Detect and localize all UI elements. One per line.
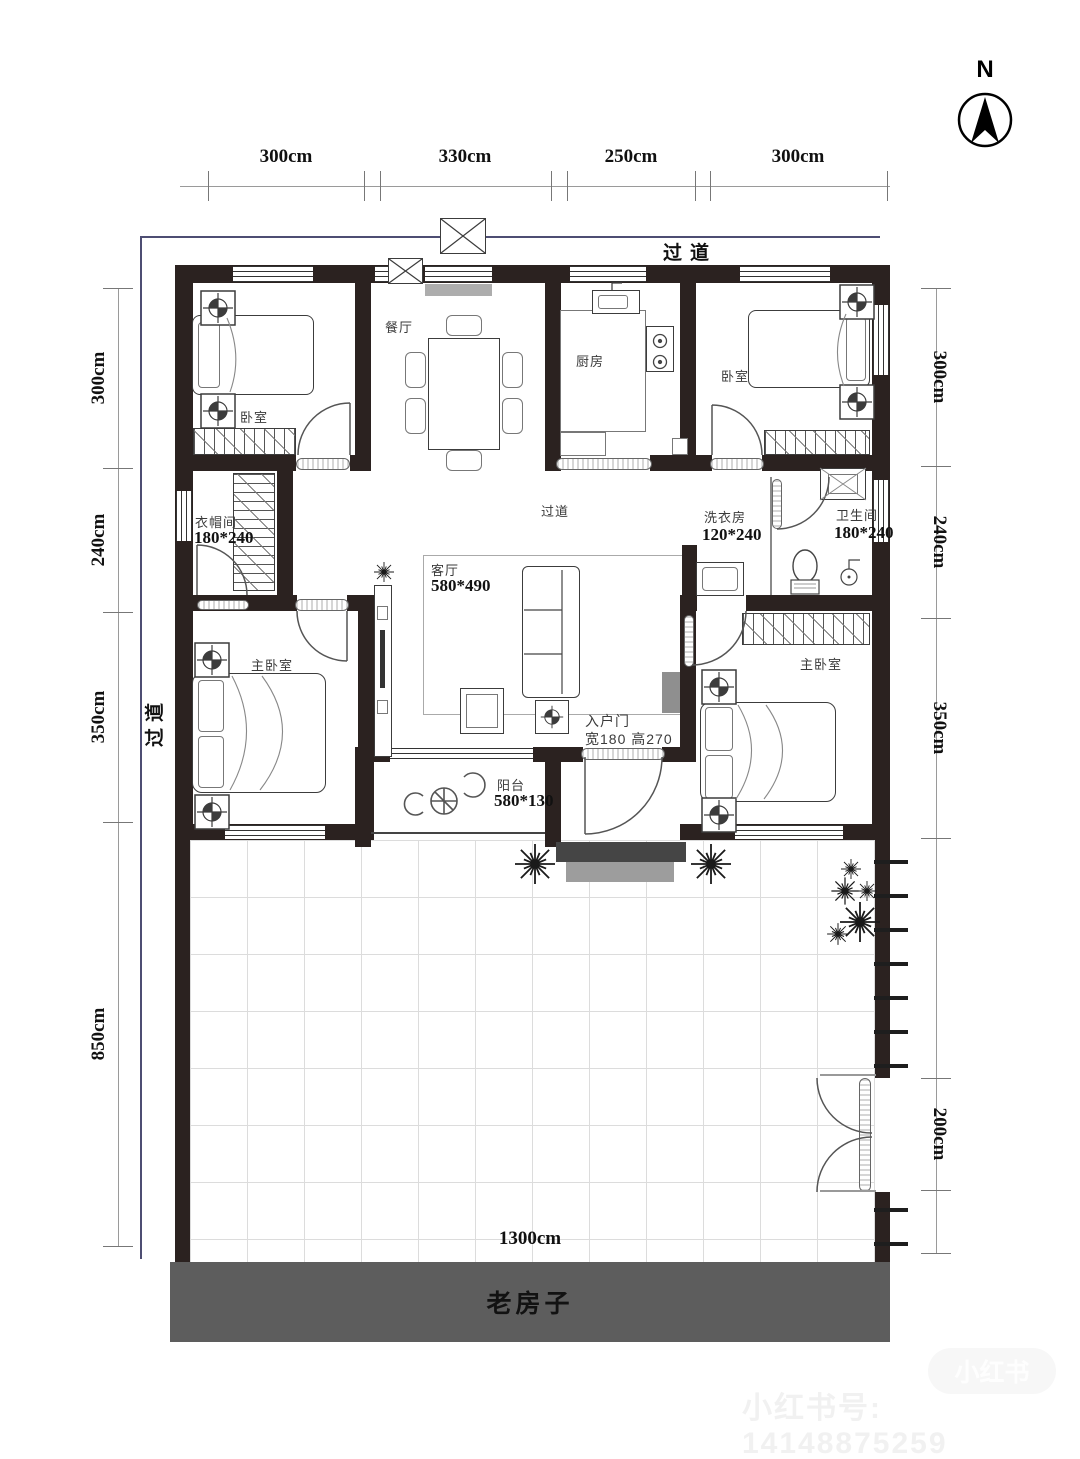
dim-tick bbox=[103, 1246, 133, 1247]
door-threshold bbox=[710, 458, 764, 470]
wall bbox=[561, 747, 583, 762]
boundary-line-top bbox=[140, 236, 880, 238]
room-size-cloakroom: 180*240 bbox=[194, 528, 254, 548]
dim-tick bbox=[364, 171, 365, 201]
fence-tick bbox=[874, 928, 908, 932]
room-label-master-left: 主卧室 bbox=[251, 655, 293, 674]
dim-tick bbox=[921, 618, 951, 619]
dim-tick bbox=[710, 171, 711, 201]
wall bbox=[746, 595, 872, 611]
room-size-entry: 宽180 高270 bbox=[585, 729, 673, 749]
balcony-edge bbox=[371, 832, 545, 834]
room-size-bath: 180*240 bbox=[834, 523, 894, 543]
fence-tick bbox=[874, 1208, 908, 1212]
cabinet-knob bbox=[377, 606, 388, 620]
wall bbox=[545, 283, 561, 471]
vent-flower bbox=[374, 562, 394, 582]
room-label-laundry: 洗衣房 bbox=[704, 507, 746, 526]
column-marker bbox=[702, 670, 736, 704]
wall-courtyard-right bbox=[875, 840, 890, 1078]
fence-tick bbox=[874, 962, 908, 966]
entry-threshold bbox=[581, 748, 665, 760]
dim-left-2: 240cm bbox=[89, 500, 109, 580]
room-label-dining: 餐厅 bbox=[385, 317, 413, 336]
bath-sink bbox=[828, 474, 858, 494]
room-size-laundry: 120*240 bbox=[702, 525, 762, 545]
dim-tick bbox=[208, 171, 209, 201]
dim-tick bbox=[695, 171, 696, 201]
dim-tick bbox=[103, 612, 133, 613]
corridor-label-top: 过道 bbox=[630, 238, 750, 264]
room-label-bedroom-tl: 卧室 bbox=[240, 407, 268, 426]
dim-tick bbox=[551, 171, 552, 201]
coffee-table-inner bbox=[466, 694, 498, 728]
dim-tick bbox=[921, 288, 951, 289]
washer-door bbox=[702, 567, 738, 591]
boundary-line-left bbox=[140, 236, 142, 1259]
chair bbox=[405, 398, 426, 434]
fence-tick bbox=[874, 1064, 908, 1068]
window bbox=[233, 266, 313, 282]
room-label-kitchen: 厨房 bbox=[576, 351, 604, 370]
wardrobe bbox=[742, 613, 870, 645]
room-label-master-right: 主卧室 bbox=[800, 654, 842, 673]
room-size-living: 580*490 bbox=[431, 576, 491, 596]
wall-courtyard-left bbox=[175, 840, 190, 1262]
window bbox=[873, 305, 889, 375]
dim-tick bbox=[921, 1078, 951, 1079]
cabinet-knob bbox=[377, 700, 388, 714]
wall bbox=[175, 265, 193, 840]
chair bbox=[446, 450, 482, 471]
dim-right-1: 300cm bbox=[929, 337, 949, 417]
dim-tick bbox=[103, 822, 133, 823]
pillow bbox=[705, 755, 733, 799]
window bbox=[740, 266, 830, 282]
door-threshold bbox=[296, 458, 350, 470]
sofa bbox=[522, 566, 580, 698]
window bbox=[425, 266, 492, 282]
wall bbox=[533, 747, 545, 762]
window bbox=[570, 266, 646, 282]
corridor-label-left: 过道 bbox=[143, 682, 163, 762]
north-arrow-icon bbox=[959, 94, 1011, 146]
window bbox=[176, 491, 192, 541]
flue-box bbox=[388, 258, 423, 284]
dim-top-2: 330cm bbox=[420, 146, 510, 168]
fence-tick bbox=[874, 894, 908, 898]
dim-line-left bbox=[118, 288, 119, 1246]
door-threshold bbox=[295, 599, 349, 611]
chair bbox=[405, 352, 426, 388]
dim-top-3: 250cm bbox=[586, 146, 676, 168]
chair bbox=[502, 352, 523, 388]
gate-frame bbox=[820, 1190, 876, 1192]
floorplan-canvas: 300cm 330cm 250cm 300cm 300cm 240cm 350c… bbox=[0, 0, 1080, 1459]
gate-frame bbox=[820, 1074, 876, 1076]
dim-top-1: 300cm bbox=[241, 146, 331, 168]
sink-basin bbox=[598, 295, 628, 309]
wall-courtyard-right bbox=[875, 1192, 890, 1262]
balcony-plants bbox=[404, 773, 484, 815]
wall bbox=[650, 455, 680, 471]
dim-top-4: 300cm bbox=[753, 146, 843, 168]
window bbox=[225, 825, 325, 839]
dim-left-3: 350cm bbox=[89, 677, 109, 757]
room-label-hall: 过道 bbox=[541, 501, 569, 520]
fence-tick bbox=[874, 1242, 908, 1246]
room-label-entry: 入户门 bbox=[585, 711, 630, 731]
pillow bbox=[705, 707, 733, 751]
dim-line-top bbox=[180, 186, 890, 187]
dim-right-3: 350cm bbox=[929, 688, 949, 768]
gate-leaf bbox=[859, 1078, 871, 1192]
dim-tick bbox=[567, 171, 568, 201]
survey-box bbox=[535, 700, 569, 734]
fence-tick bbox=[874, 996, 908, 1000]
wall bbox=[277, 471, 293, 595]
dim-tick bbox=[103, 288, 133, 289]
dim-bottom: 1300cm bbox=[480, 1228, 580, 1250]
pillow bbox=[198, 680, 224, 732]
dim-left-4: 850cm bbox=[89, 994, 109, 1074]
column-marker bbox=[201, 394, 235, 428]
old-house-band: 老房子 bbox=[170, 1262, 890, 1342]
wall bbox=[680, 595, 690, 611]
wardrobe bbox=[764, 430, 870, 455]
wall bbox=[193, 455, 296, 471]
dim-tick bbox=[921, 1253, 951, 1254]
tv bbox=[380, 630, 385, 688]
dim-tick bbox=[887, 171, 888, 201]
window bbox=[390, 748, 533, 761]
door-threshold bbox=[197, 600, 249, 610]
kitchen-counter bbox=[560, 310, 646, 432]
flue-box bbox=[440, 218, 486, 254]
pillow bbox=[846, 317, 866, 381]
fence-tick bbox=[874, 1030, 908, 1034]
dim-tick bbox=[921, 466, 951, 467]
wardrobe bbox=[193, 428, 296, 455]
window bbox=[735, 825, 843, 839]
wall bbox=[350, 455, 355, 471]
pillow bbox=[198, 736, 224, 788]
dim-right-2: 240cm bbox=[929, 502, 949, 582]
room-label-bath: 卫生间 bbox=[836, 505, 878, 524]
kitchen-box bbox=[672, 438, 688, 455]
door-leaf bbox=[684, 615, 694, 667]
chair bbox=[502, 398, 523, 434]
compass-label: N bbox=[973, 56, 997, 84]
step-upper bbox=[556, 842, 686, 862]
room-label-bedroom-tr: 卧室 bbox=[721, 366, 749, 385]
room-size-balcony: 580*130 bbox=[494, 791, 554, 811]
dim-tick bbox=[921, 1190, 951, 1191]
window-sill bbox=[425, 284, 492, 296]
dim-tick bbox=[921, 838, 951, 839]
chair bbox=[446, 315, 482, 336]
dining-table bbox=[428, 338, 500, 450]
wall bbox=[662, 747, 696, 762]
dim-tick bbox=[103, 468, 133, 469]
step-lower bbox=[566, 862, 674, 882]
kitchen-cabinet bbox=[560, 432, 606, 456]
door-leaf bbox=[772, 479, 782, 529]
shaft bbox=[662, 672, 680, 713]
dim-left-1: 300cm bbox=[89, 338, 109, 418]
dim-tick bbox=[380, 171, 381, 201]
stove bbox=[646, 326, 674, 372]
column-marker bbox=[840, 385, 874, 419]
wall bbox=[355, 283, 371, 471]
dim-right-4: 200cm bbox=[929, 1094, 949, 1174]
faucet bbox=[612, 283, 622, 290]
courtyard-tile-grid bbox=[190, 840, 875, 1262]
watermark-text: 小红书号: 14148875259 bbox=[742, 1383, 1080, 1459]
pillow bbox=[198, 322, 220, 388]
door-threshold bbox=[556, 458, 652, 470]
column-marker bbox=[195, 643, 229, 677]
fence-tick bbox=[874, 860, 908, 864]
